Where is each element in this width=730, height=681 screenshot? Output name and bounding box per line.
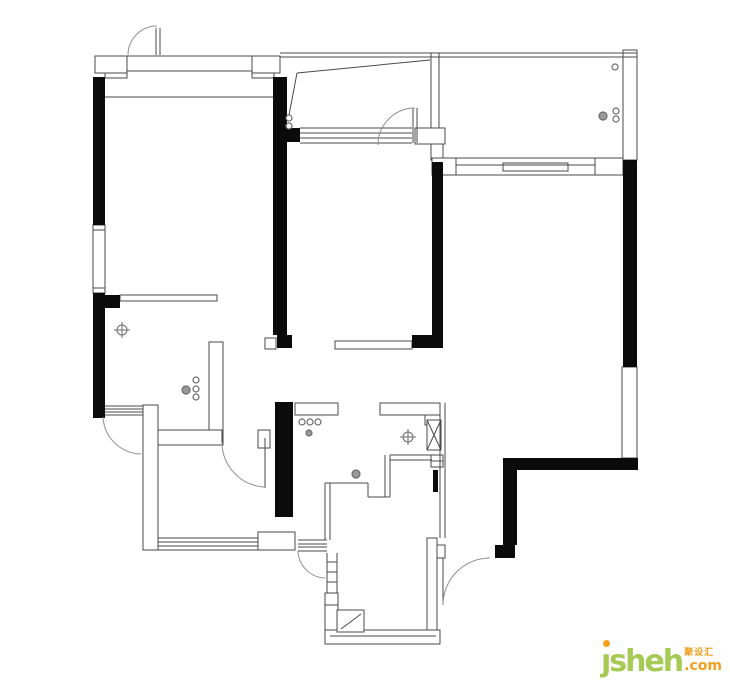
outlet-symbol [286,115,292,121]
watermark-com: .com [684,659,722,673]
watermark-cjk: 聚设汇 [684,649,722,658]
j-dot-icon [603,640,610,647]
wall-thin [258,430,270,448]
outlet-symbol [612,64,618,70]
outlet-symbol [182,386,190,394]
brand-rest: sheh [609,644,682,679]
outlet-symbol [352,470,360,478]
wall-solid [432,162,443,335]
wall-thin [595,158,623,175]
outlet-symbol [306,430,312,436]
wall-solid [275,402,293,517]
jsheh-watermark: ȷ sheh 聚设汇 .com [601,647,722,677]
wall-thin [258,532,295,550]
wall-solid [93,293,105,418]
wall-thin [325,593,338,605]
outlet-symbol [599,112,607,120]
wall-solid [433,470,438,492]
wall-thin [623,50,637,160]
floor-plan-page: ȷ sheh 聚设汇 .com [0,0,730,681]
wall-thin [265,338,276,349]
wall-thin [437,545,445,558]
wall-solid [412,335,443,348]
wall-thin [120,295,217,301]
outlet-symbol [193,386,199,392]
outlet-symbol [193,394,199,400]
outlet-symbol [299,419,305,425]
outlet-symbol [286,123,292,129]
wall-solid [495,545,515,558]
wall-thin [252,73,274,78]
outlet-symbol [613,108,619,114]
watermark-tail: 聚设汇 .com [684,649,722,673]
wall-solid [93,77,105,225]
wall-thin [105,73,127,78]
wall-thin [325,605,338,630]
wall-solid [273,77,287,335]
wall-thin [143,405,158,550]
watermark-brand: ȷ sheh [601,647,682,677]
wall-thin [503,163,568,171]
wall-thin [427,538,437,630]
wall-thin [380,403,440,415]
wall-thin [415,128,445,144]
brand-head: ȷ [601,644,609,679]
wall-thin [622,367,637,458]
wall-thin [295,403,338,415]
wall-solid [623,160,637,367]
outlet-symbol [193,377,199,383]
wall-solid [277,335,292,348]
wall-solid [503,458,638,470]
wall-thin [158,430,222,445]
wall-thin [95,56,127,73]
wall-solid [287,128,300,142]
wall-thin [252,56,280,73]
wall-thin [335,341,412,349]
wall-solid [105,295,120,308]
wall-solid [503,470,517,545]
floor-plan [0,0,730,681]
wall-thin [93,225,105,293]
outlet-symbol [613,116,619,122]
watermark-letter-j: ȷ [601,647,609,677]
outlet-symbol [315,419,321,425]
outlet-symbol [307,419,313,425]
